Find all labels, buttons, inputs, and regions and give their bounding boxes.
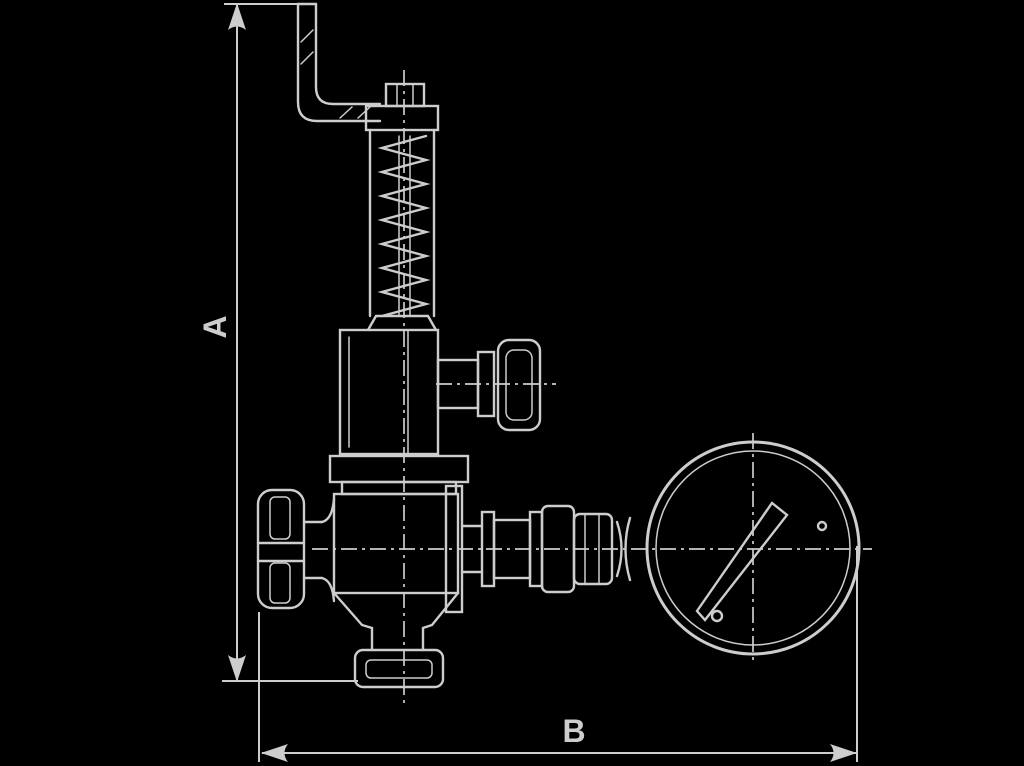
gauge-needle	[697, 503, 787, 620]
bonnet-neck	[342, 482, 456, 494]
body-chamfer-right	[423, 593, 458, 650]
adjusting-screw	[366, 84, 438, 130]
top-collar	[366, 106, 438, 130]
body-block	[334, 494, 458, 593]
outlet-flange-inner	[366, 660, 432, 678]
dimension-b-label: B	[562, 713, 585, 749]
handwheel-spoke-top	[270, 497, 290, 539]
adjusting-nut	[386, 84, 424, 106]
test-knob-inner	[506, 350, 532, 420]
body-chamfer-left	[334, 593, 372, 650]
test-port	[438, 340, 540, 430]
outlet-flange	[355, 650, 443, 687]
bonnet-flange	[330, 456, 468, 482]
lever-inner-edge	[316, 4, 380, 104]
handwheel-rim	[258, 490, 304, 608]
valve-diagram: A B	[0, 0, 1024, 766]
stem-bell-top	[322, 499, 334, 522]
arrowhead-up	[228, 3, 246, 30]
housing-body	[340, 330, 438, 454]
collar-step	[368, 316, 436, 330]
arrowhead-left	[261, 744, 288, 762]
test-lever	[298, 4, 380, 121]
dimension-a-label: A	[197, 315, 233, 338]
gauge-screw-dot	[818, 522, 826, 530]
gauge-stem-right	[626, 518, 631, 580]
arrowhead-right	[830, 744, 857, 762]
stem-bell-bottom	[322, 578, 334, 601]
drawing-canvas: A B	[0, 0, 1024, 766]
test-knob-outer	[498, 340, 540, 430]
arrowhead-down	[228, 655, 246, 682]
spring-housing	[330, 130, 468, 494]
centerlines	[312, 70, 872, 706]
needle-hub-dot	[712, 611, 722, 621]
handwheel-spoke-bottom	[270, 563, 290, 603]
valve-body	[334, 494, 458, 687]
